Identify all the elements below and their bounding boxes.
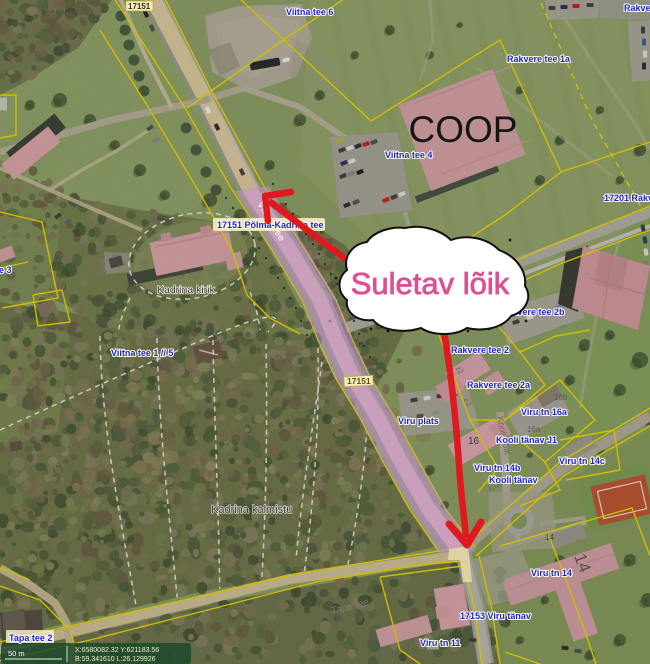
svg-text:Rakvere tee 2a: Rakvere tee 2a — [467, 380, 531, 390]
svg-text:Rakvere tee 1a: Rakvere tee 1a — [507, 54, 571, 64]
svg-text:Viitna tee 4: Viitna tee 4 — [385, 150, 432, 160]
svg-text:Kadrina kalmistu: Kadrina kalmistu — [211, 504, 292, 516]
svg-text:COOP: COOP — [409, 109, 518, 150]
svg-text:17151: 17151 — [347, 376, 371, 386]
svg-text:Suletav lõik: Suletav lõik — [351, 266, 510, 301]
svg-text:14: 14 — [545, 533, 554, 542]
svg-text:Viru tn 16a: Viru tn 16a — [521, 407, 568, 417]
svg-text:50 m: 50 m — [8, 649, 25, 658]
svg-text:17201 Rakve: 17201 Rakve — [604, 193, 650, 203]
svg-text:Viitna tee 6: Viitna tee 6 — [286, 7, 333, 17]
svg-text:Kadrina kirik: Kadrina kirik — [157, 284, 216, 296]
svg-text:16: 16 — [468, 436, 480, 447]
svg-text:17151: 17151 — [128, 2, 151, 11]
svg-text:Kooli tänav: Kooli tänav — [489, 475, 538, 485]
svg-text:Tapa tee 2: Tapa tee 2 — [9, 633, 52, 643]
svg-text:16a: 16a — [527, 425, 541, 434]
svg-text:X:6580082.32 Y:621183.56: X:6580082.32 Y:621183.56 — [75, 647, 159, 654]
svg-text:Viru tn 14b: Viru tn 14b — [474, 463, 521, 473]
svg-text:Viru tn 11: Viru tn 11 — [420, 638, 460, 648]
svg-text:Viitna tee 1 // 5: Viitna tee 1 // 5 — [111, 348, 173, 358]
svg-text:Viru tn 14: Viru tn 14 — [531, 568, 572, 578]
svg-text:B:59.341610 L:26.129926: B:59.341610 L:26.129926 — [75, 656, 156, 663]
svg-text:Viru tn 14c: Viru tn 14c — [559, 456, 605, 466]
svg-text:Viru plats: Viru plats — [398, 416, 439, 426]
svg-text:ee 3: ee 3 — [0, 265, 12, 275]
svg-text:16b: 16b — [554, 393, 568, 402]
svg-text:Rakvere tee 2: Rakvere tee 2 — [451, 345, 509, 355]
svg-text:17153 Viru tänav: 17153 Viru tänav — [460, 611, 531, 621]
svg-text:Kooli tänav J1: Kooli tänav J1 — [496, 435, 557, 445]
svg-text:Rakvere: Rakvere — [624, 3, 650, 13]
